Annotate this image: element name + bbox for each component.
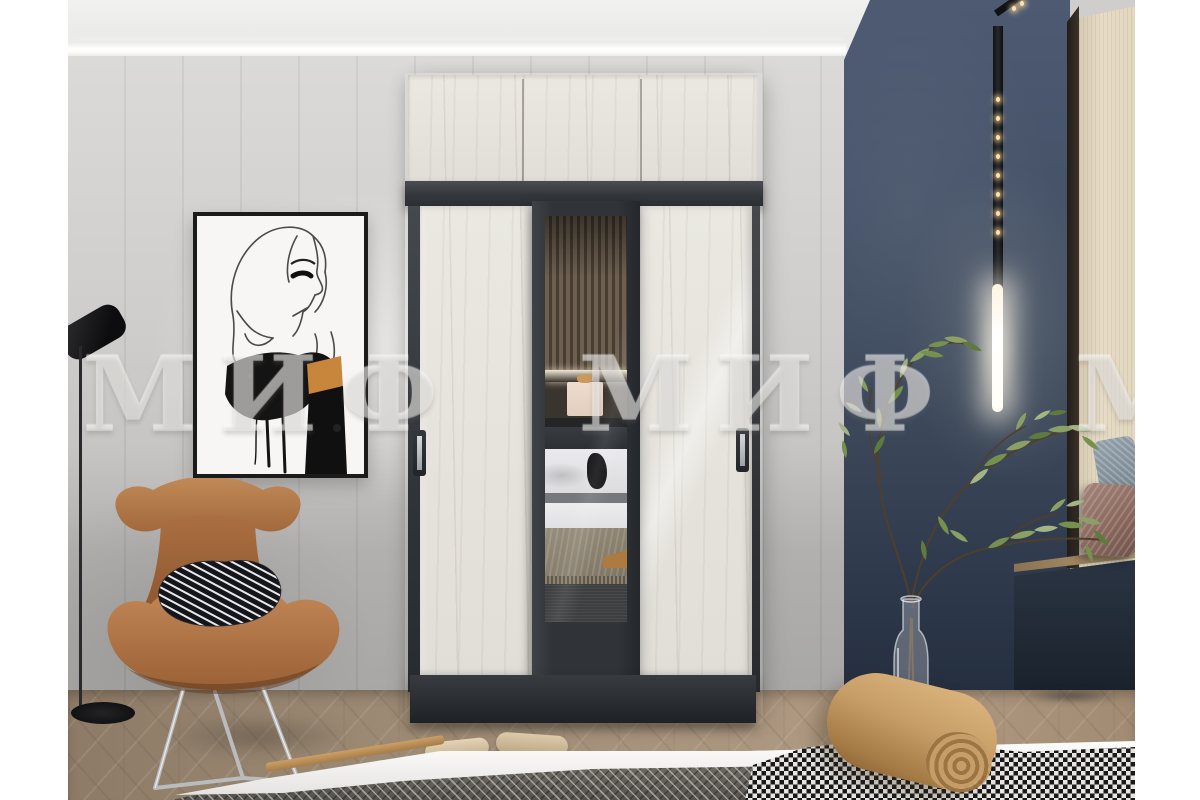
sliding-wardrobe — [405, 73, 763, 725]
mirror-reflection — [545, 216, 627, 622]
floor-lamp-pole — [79, 346, 82, 708]
track-led-dot — [996, 97, 1000, 102]
wardrobe-top-cabinets — [408, 75, 758, 182]
plant-leaves — [837, 335, 1111, 563]
wardrobe-left-door — [420, 206, 532, 675]
wardrobe-plinth — [410, 675, 756, 723]
track-led-dot — [996, 154, 1000, 159]
olive-branch-plant — [820, 318, 1120, 720]
interior-photo: МИФ МИФ МИФ МИФ — [68, 0, 1135, 800]
chair-legs — [155, 688, 299, 788]
screenshot-canvas: МИФ МИФ МИФ МИФ — [0, 0, 1200, 800]
door-handle-right — [736, 428, 749, 472]
cabinet-door-seam — [640, 79, 642, 182]
cabinet-door-seam — [522, 79, 524, 182]
track-led-dot — [996, 211, 1000, 216]
fashion-sketch — [197, 216, 364, 474]
track-led-dot — [996, 135, 1000, 140]
track-led-dot — [1012, 6, 1016, 11]
terracotta-wing-chair — [103, 478, 353, 800]
track-led-dot — [996, 173, 1000, 178]
door-handle-left — [413, 430, 426, 476]
plant-stems — [868, 343, 1104, 608]
mirror-glare — [545, 216, 627, 622]
wall-art — [193, 212, 368, 478]
track-led-dot — [996, 116, 1000, 121]
track-led-dot — [996, 192, 1000, 197]
track-led-dot — [996, 230, 1000, 235]
wardrobe-mirror-door — [532, 201, 640, 680]
track-led-dot — [1020, 1, 1024, 6]
door-handle-left-metal — [417, 436, 422, 470]
door-handle-right-metal — [740, 434, 745, 466]
zebra-pillow — [159, 560, 281, 626]
